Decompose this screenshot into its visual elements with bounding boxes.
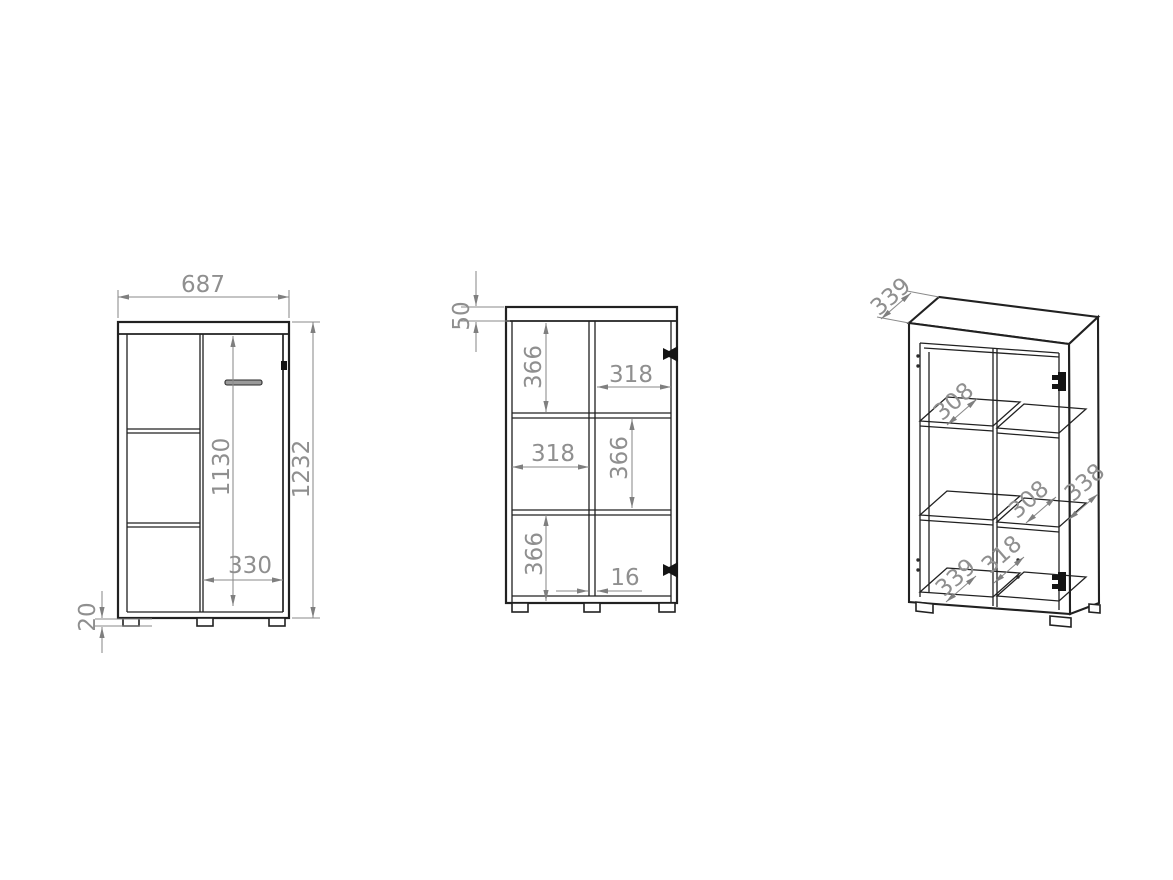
hinge-knob bbox=[1052, 584, 1058, 589]
foot-middle bbox=[197, 618, 213, 626]
shelf-pin-hole bbox=[1016, 575, 1019, 578]
hinge-knob bbox=[1052, 575, 1058, 580]
dim-label: 1232 bbox=[289, 440, 315, 499]
hinge-body bbox=[1058, 372, 1066, 391]
dim-label: 339 bbox=[866, 273, 916, 321]
arrowhead-icon bbox=[310, 607, 315, 618]
dim-front-height: 1232 bbox=[289, 322, 320, 618]
dim-label: 366 bbox=[522, 532, 548, 576]
dim-label: 330 bbox=[228, 553, 272, 579]
dim-label: 318 bbox=[609, 362, 653, 388]
foot-front-right bbox=[1050, 616, 1071, 627]
foot-right bbox=[269, 618, 285, 626]
arrowhead-icon bbox=[278, 294, 289, 299]
hinge-icon bbox=[281, 361, 287, 370]
door-handle bbox=[225, 380, 262, 385]
foot-front-left bbox=[916, 602, 933, 613]
shelf-pin-hole bbox=[916, 558, 919, 561]
foot-back-right bbox=[1089, 604, 1100, 613]
arrowhead-icon bbox=[310, 322, 315, 333]
shelf-pin-hole bbox=[916, 354, 919, 357]
dim-label: 366 bbox=[521, 345, 547, 389]
dim-front-width: 687 bbox=[118, 272, 289, 318]
dim-top-panel: 50 bbox=[449, 271, 510, 352]
section-view: 50 366 318 318 366 366 16 bbox=[449, 271, 678, 612]
dim-label: 687 bbox=[181, 272, 225, 298]
shelf-pin-hole bbox=[916, 568, 919, 571]
dim-label: 50 bbox=[449, 301, 475, 330]
foot-right bbox=[659, 603, 675, 612]
front-view: 687 1232 1130 330 20 bbox=[75, 272, 320, 653]
arrowhead-icon bbox=[118, 294, 129, 299]
drawing-canvas: 687 1232 1130 330 20 bbox=[0, 0, 1173, 880]
dim-label: 318 bbox=[531, 441, 575, 467]
hinge-knob bbox=[1052, 384, 1058, 389]
hinge-knob bbox=[1052, 375, 1058, 380]
foot-middle bbox=[584, 603, 600, 612]
dim-label: 366 bbox=[607, 436, 633, 480]
dim-label: 16 bbox=[610, 565, 639, 591]
perspective-view: 339 308 308 338 318 339 bbox=[866, 273, 1110, 627]
technical-drawing: 687 1232 1130 330 20 bbox=[0, 0, 1173, 880]
hinge-body bbox=[1058, 572, 1066, 591]
dim-label: 1130 bbox=[209, 438, 235, 497]
shelf-pin-hole bbox=[916, 364, 919, 367]
foot-left bbox=[512, 603, 528, 612]
dim-label: 20 bbox=[75, 602, 101, 631]
